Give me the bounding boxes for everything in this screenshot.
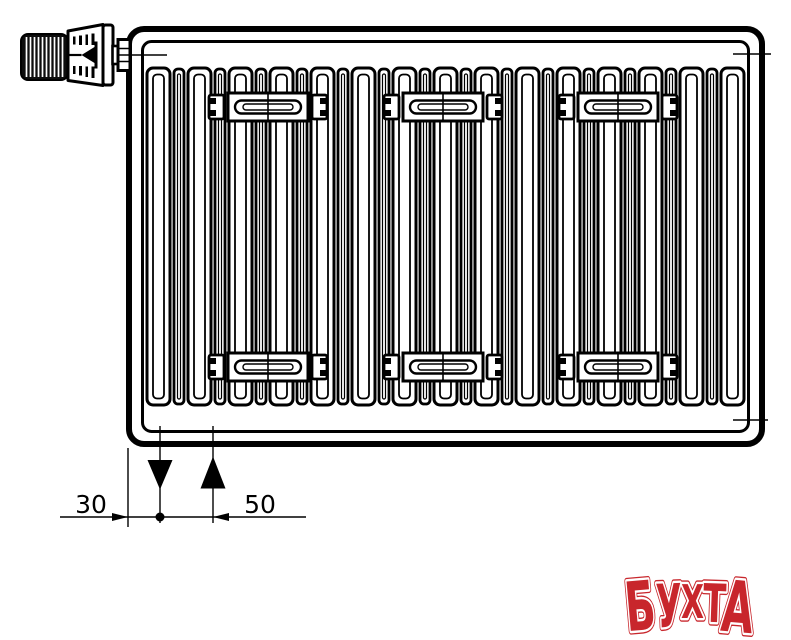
mounting-bracket	[384, 93, 502, 121]
fin-narrow	[338, 69, 348, 404]
fin-wide	[147, 68, 170, 405]
fin-wide	[516, 68, 539, 405]
thermostatic-valve	[21, 25, 167, 86]
mounting-bracket	[559, 353, 677, 381]
mounting-bracket	[384, 353, 502, 381]
fin-wide	[680, 68, 703, 405]
fin-wide	[721, 68, 744, 405]
mounting-bracket	[559, 93, 677, 121]
fin-wide	[188, 68, 211, 405]
fin-narrow	[174, 69, 184, 404]
drawing-canvas: 30 50 БУХТАБУХТАБУХТА	[0, 0, 791, 640]
valve-dial-pointer-bar	[95, 42, 98, 69]
brand-logo-letter: Б	[622, 567, 659, 640]
mounting-bracket	[209, 353, 327, 381]
radiator-technical-drawing: 30 50 БУХТАБУХТАБУХТА	[0, 0, 791, 640]
brand-logo-letter: Х	[681, 575, 704, 629]
dimension-dot-terminator	[156, 513, 165, 522]
dimension-label-50: 50	[244, 490, 276, 519]
valve-knob-drum	[21, 34, 68, 80]
fin-wide	[352, 68, 375, 405]
brand-logo-letter: У	[655, 572, 683, 640]
return-arrow-up-icon	[201, 457, 226, 489]
dimension-arrowhead-right-icon	[112, 513, 128, 521]
fin-narrow	[543, 69, 553, 404]
brand-logo-letter: А	[718, 565, 757, 640]
fin-narrow	[502, 69, 512, 404]
mounting-brackets	[209, 93, 677, 381]
supply-arrow-down-icon	[148, 460, 173, 490]
brand-logo: БУХТАБУХТАБУХТА	[622, 565, 758, 640]
mounting-bracket	[209, 93, 327, 121]
dimension-label-30: 30	[75, 490, 107, 519]
fin-narrow	[707, 69, 717, 404]
dimension-arrowhead-left-icon	[213, 513, 229, 521]
